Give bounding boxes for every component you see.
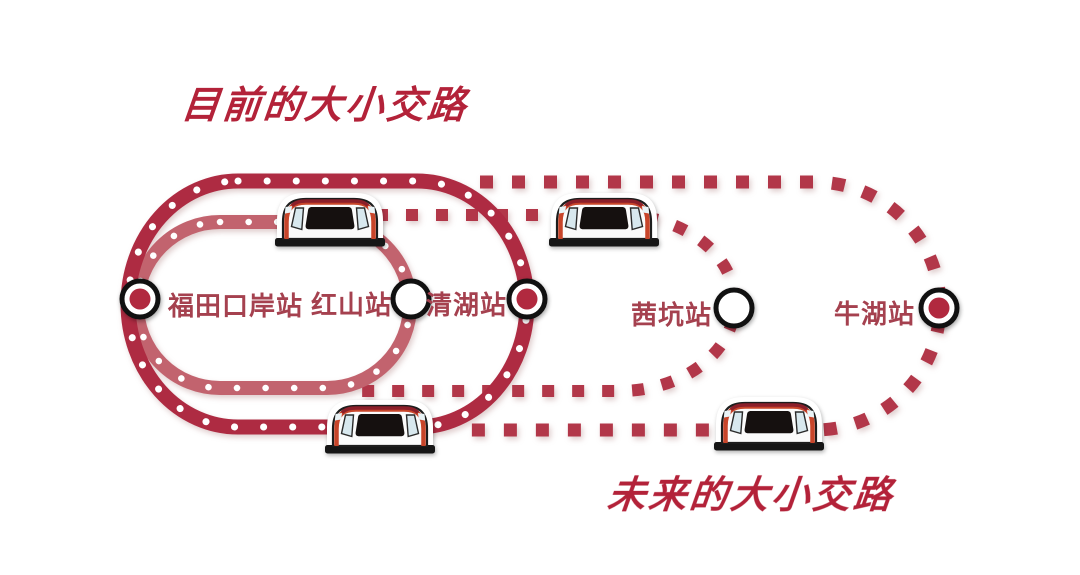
train-icon-bottom-right bbox=[714, 400, 824, 451]
title-current-routing: 目前的大小交路 bbox=[179, 74, 472, 129]
station-label-qinghu: 清湖站 bbox=[407, 285, 507, 322]
station-label-xikeng: 茜坑站 bbox=[612, 295, 712, 332]
station-marker-niuhu bbox=[921, 290, 957, 326]
loops-canvas bbox=[0, 0, 1080, 575]
train-icon-bottom-left bbox=[325, 403, 435, 454]
station-label-hongshan: 红山站 bbox=[292, 285, 392, 322]
route-diagram: 目前的大小交路 未来的大小交路 福田口岸站 红山站 清湖站 茜坑站 牛湖站 bbox=[0, 0, 1080, 575]
title-future-routing: 未来的大小交路 bbox=[605, 464, 898, 519]
train-icon-top-middle bbox=[549, 196, 659, 247]
station-label-niuhu: 牛湖站 bbox=[815, 294, 915, 331]
station-marker-qinghu bbox=[509, 281, 545, 317]
station-marker-xikeng bbox=[716, 290, 752, 326]
station-marker-futian-checkpoint bbox=[122, 281, 158, 317]
station-label-futian-checkpoint: 福田口岸站 bbox=[168, 286, 303, 323]
train-icon-top-left bbox=[275, 196, 385, 247]
